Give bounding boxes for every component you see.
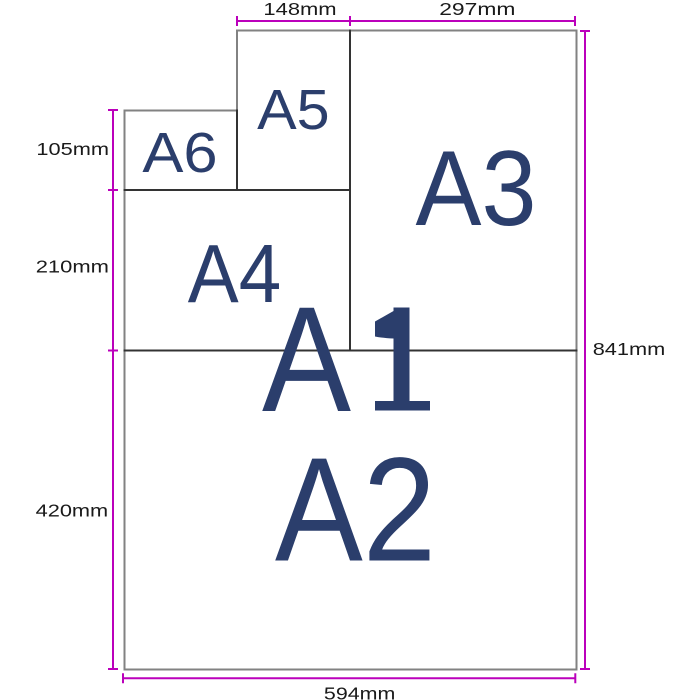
svg-text:594mm: 594mm (324, 684, 395, 700)
svg-text:A2: A2 (275, 426, 436, 592)
svg-text:A: A (262, 276, 351, 444)
svg-text:148mm: 148mm (263, 0, 336, 19)
svg-text:A6: A6 (142, 120, 217, 184)
svg-text:420mm: 420mm (36, 501, 109, 521)
svg-text:A3: A3 (416, 128, 537, 247)
svg-text:841mm: 841mm (593, 340, 666, 360)
svg-text:A5: A5 (257, 78, 330, 142)
svg-text:210mm: 210mm (36, 257, 109, 277)
svg-text:297mm: 297mm (439, 0, 515, 19)
svg-text:105mm: 105mm (36, 140, 109, 160)
